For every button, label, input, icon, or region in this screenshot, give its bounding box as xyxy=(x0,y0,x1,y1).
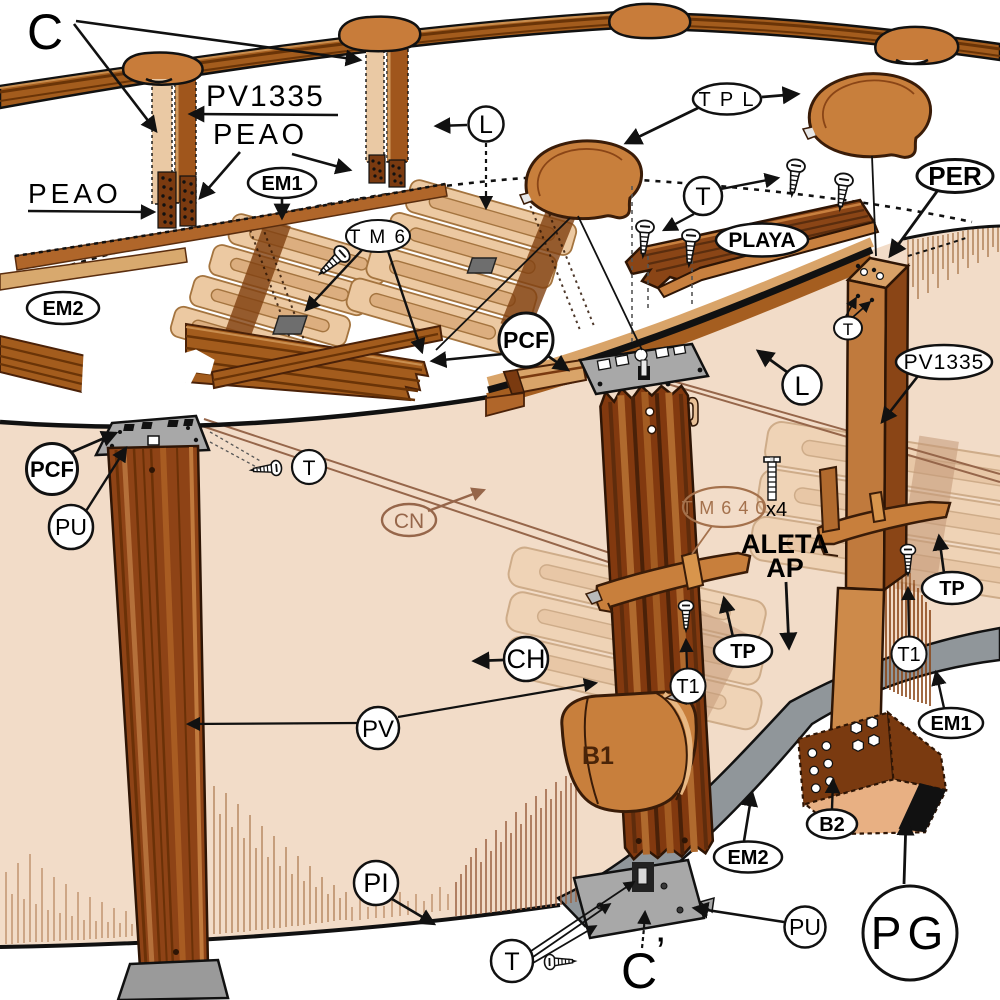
svg-text:L: L xyxy=(479,111,493,139)
svg-text:T1: T1 xyxy=(676,676,699,698)
svg-text:TP: TP xyxy=(939,578,965,600)
svg-text:PV: PV xyxy=(362,716,394,743)
svg-text:T: T xyxy=(695,183,710,211)
svg-text:EM2: EM2 xyxy=(727,847,768,869)
svg-text:PG: PG xyxy=(871,907,949,959)
svg-text:PI: PI xyxy=(363,868,389,898)
svg-text:AP: AP xyxy=(766,553,804,583)
svg-text:PCF: PCF xyxy=(30,457,74,482)
svg-text:PV1335: PV1335 xyxy=(206,80,325,113)
svg-text:T: T xyxy=(303,457,316,480)
svg-text:CN: CN xyxy=(394,510,424,533)
svg-text:T: T xyxy=(504,948,519,976)
svg-text:B1: B1 xyxy=(582,742,614,770)
svg-text:PER: PER xyxy=(928,161,982,191)
svg-text:TP: TP xyxy=(730,641,756,663)
svg-text:T M 6 4 0: T M 6 4 0 xyxy=(682,498,767,518)
svg-text:L: L xyxy=(794,371,809,401)
svg-text:T P L: T P L xyxy=(698,89,755,111)
svg-text:PLAYA: PLAYA xyxy=(728,229,795,252)
svg-text:EM1: EM1 xyxy=(261,173,302,195)
svg-text:C: C xyxy=(621,943,657,999)
svg-text:T: T xyxy=(843,320,853,339)
svg-text:x4: x4 xyxy=(766,499,787,521)
svg-text:PEAO: PEAO xyxy=(213,119,308,151)
svg-text:PU: PU xyxy=(789,914,821,940)
svg-text:C: C xyxy=(27,4,63,60)
svg-text:PCF: PCF xyxy=(503,327,549,353)
svg-text:T M 6: T M 6 xyxy=(349,227,407,248)
svg-text:PU: PU xyxy=(55,514,87,540)
svg-text:T1: T1 xyxy=(897,644,920,666)
svg-text:EM1: EM1 xyxy=(930,713,971,735)
svg-text:PEAO: PEAO xyxy=(28,178,122,209)
svg-text:B2: B2 xyxy=(819,814,845,836)
svg-text:’: ’ xyxy=(656,928,665,975)
svg-text:PV1335: PV1335 xyxy=(904,351,985,374)
svg-text:EM2: EM2 xyxy=(42,298,83,320)
svg-text:CH: CH xyxy=(507,644,546,674)
